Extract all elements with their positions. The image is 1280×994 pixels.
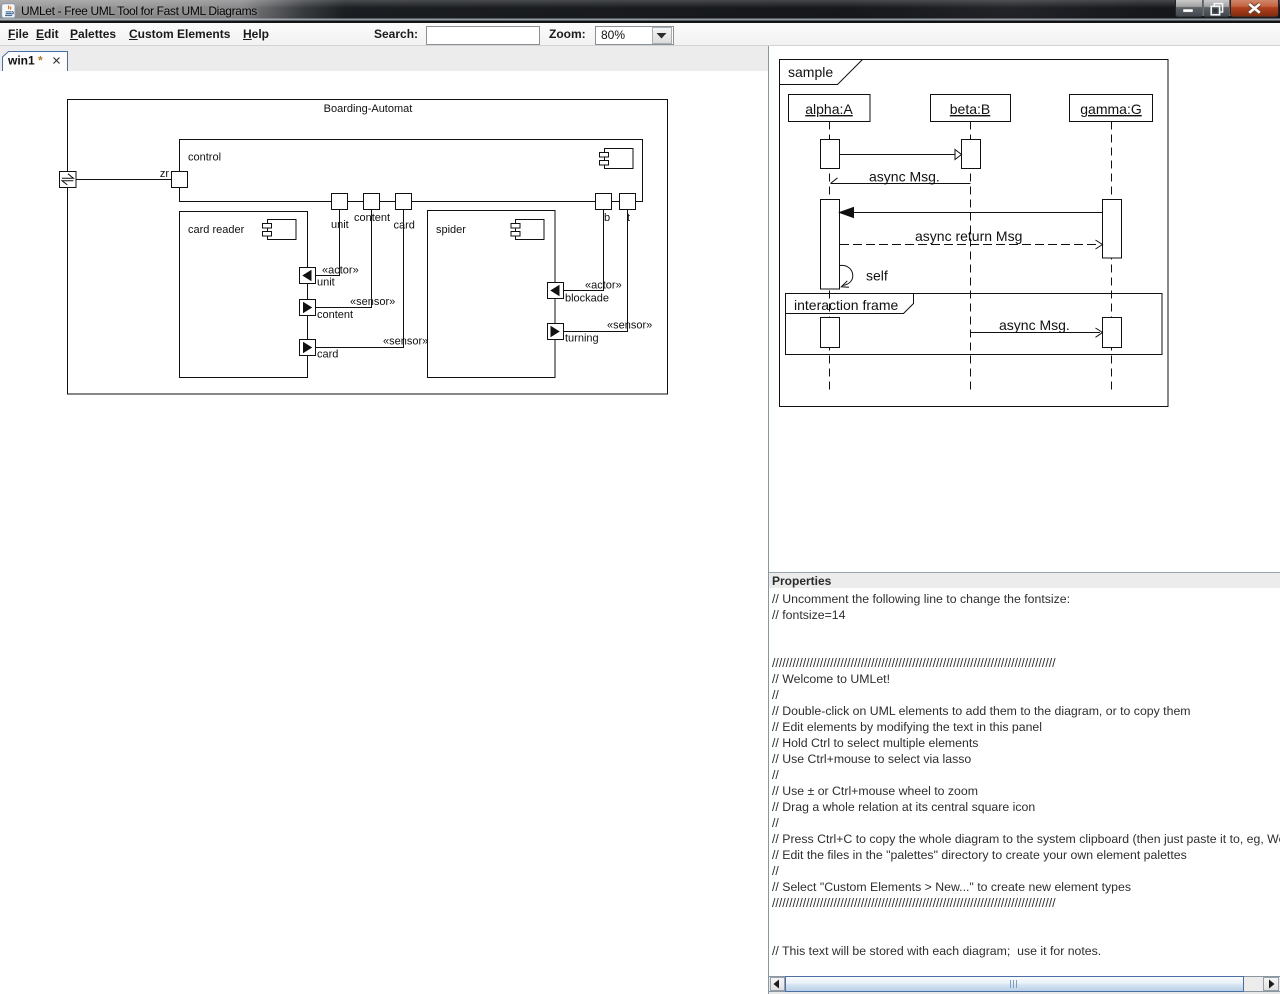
svg-text:spider: spider (436, 224, 466, 236)
svg-text:«sensor»: «sensor» (350, 296, 395, 308)
svg-text:«actor»: «actor» (322, 265, 359, 277)
svg-text:unit: unit (317, 277, 335, 289)
svg-text:«actor»: «actor» (585, 280, 622, 292)
svg-text:«sensor»: «sensor» (383, 336, 428, 348)
svg-text:t: t (627, 212, 630, 224)
svg-text:control: control (188, 152, 221, 164)
svg-text:gamma:G: gamma:G (1080, 101, 1141, 117)
svg-text:turning: turning (565, 333, 599, 345)
svg-text:sample: sample (788, 64, 833, 80)
svg-text:b: b (604, 212, 610, 224)
svg-text:zr: zr (160, 168, 170, 180)
svg-text:interaction frame: interaction frame (794, 297, 898, 313)
svg-text:beta:B: beta:B (950, 101, 990, 117)
svg-text:unit: unit (331, 219, 349, 231)
svg-text:Boarding-Automat: Boarding-Automat (324, 103, 413, 115)
svg-text:card: card (394, 220, 415, 232)
svg-text:async return Msg: async return Msg (915, 228, 1022, 244)
svg-text:self: self (866, 268, 888, 284)
svg-text:win1 *: win1 * (7, 54, 43, 68)
svg-text:«sensor»: «sensor» (607, 320, 652, 332)
svg-text:blockade: blockade (565, 293, 609, 305)
svg-text:card: card (317, 349, 338, 361)
svg-text:alpha:A: alpha:A (805, 101, 853, 117)
svg-text:async Msg.: async Msg. (999, 317, 1070, 333)
svg-text:content: content (354, 212, 390, 224)
svg-text:content: content (317, 309, 353, 321)
svg-text:card reader: card reader (188, 224, 245, 236)
svg-text:async Msg.: async Msg. (869, 169, 940, 185)
